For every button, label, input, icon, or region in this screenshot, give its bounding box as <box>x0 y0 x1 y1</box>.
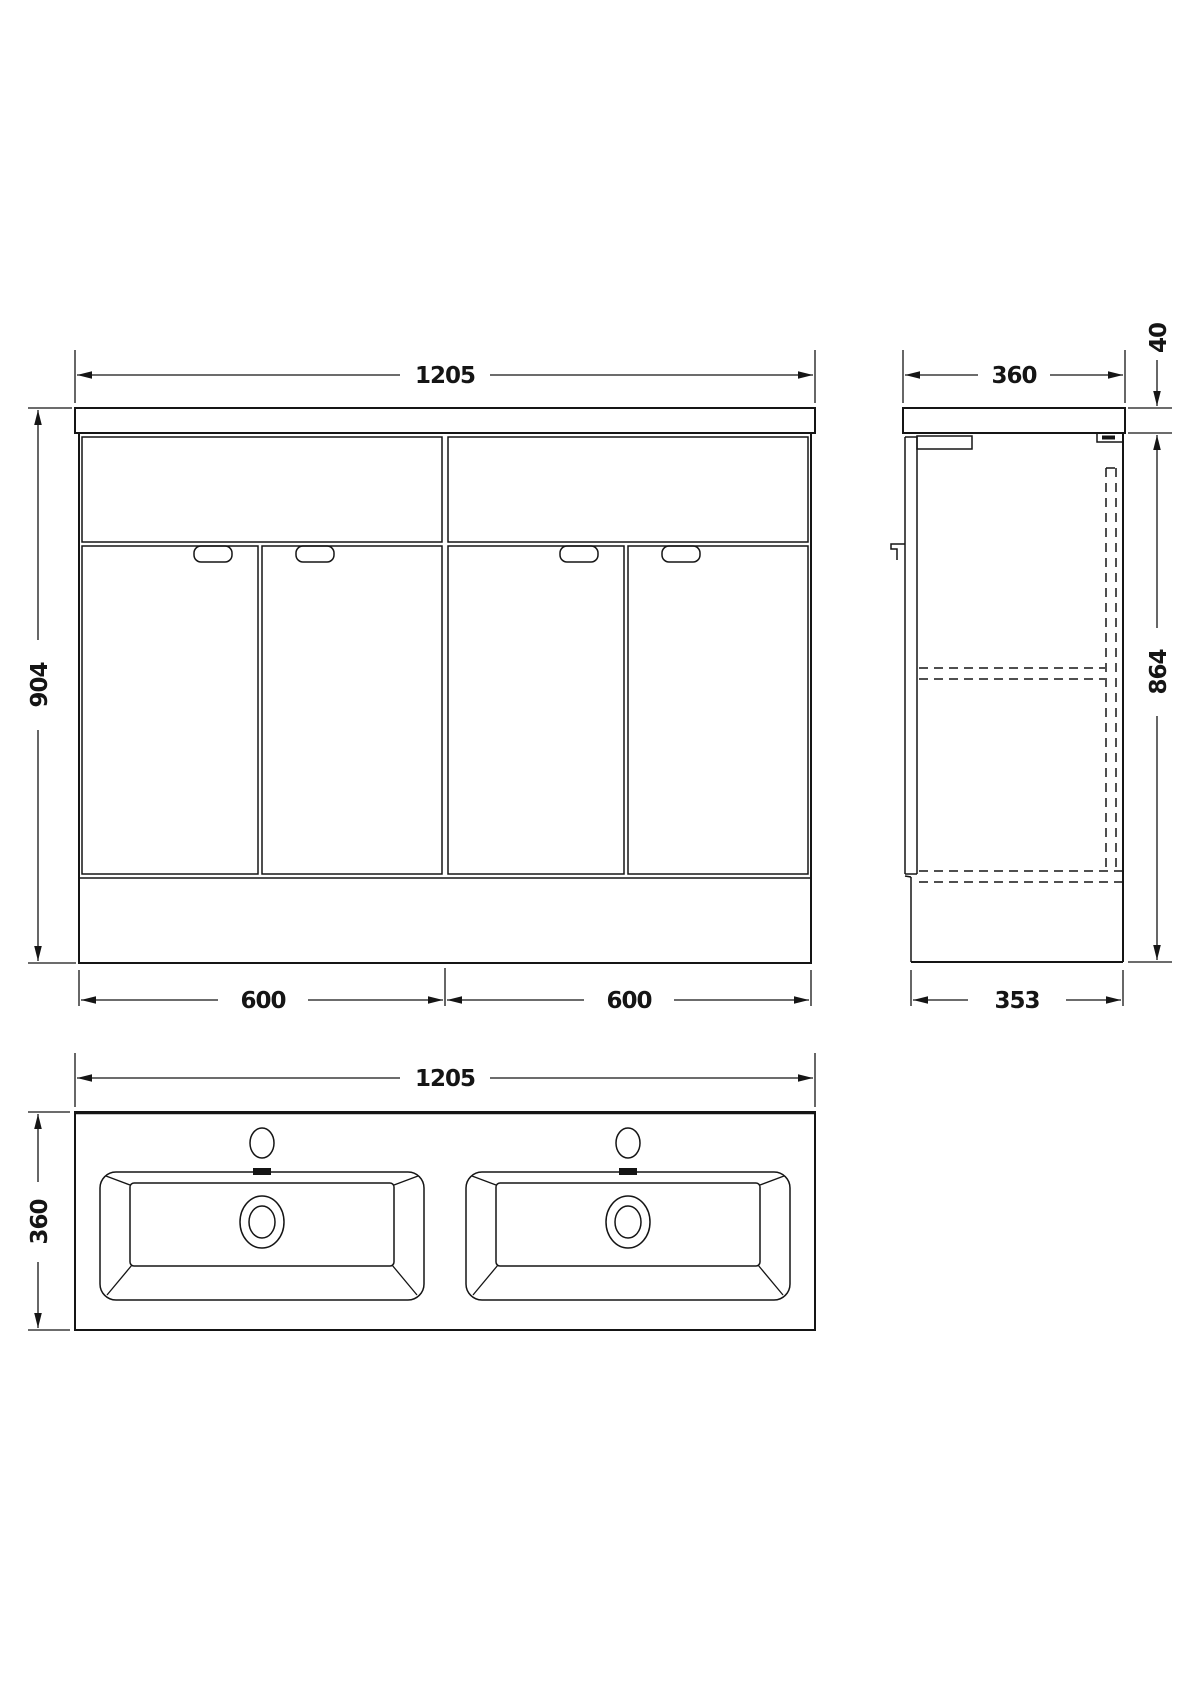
side-drawer-box <box>917 436 972 449</box>
wall-bracket-slot <box>1102 436 1115 440</box>
front-door-4 <box>628 546 808 874</box>
tap-hole-icon <box>616 1128 640 1158</box>
side-countertop <box>903 408 1125 433</box>
technical-drawing-canvas: 1205 904 600 600 <box>0 0 1200 1698</box>
dim-front-height: 904 <box>27 408 76 963</box>
basin-corner-line <box>394 1176 418 1185</box>
door-handle-icon <box>662 546 700 562</box>
door-handle-icon <box>194 546 232 562</box>
dim-label-front-height: 904 <box>27 662 53 707</box>
basin-corner-line <box>106 1176 130 1185</box>
dim-front-units: 600 600 <box>79 968 811 1014</box>
front-drawer-left <box>82 437 442 542</box>
plan-basin-right <box>466 1128 790 1300</box>
basin-corner-line <box>473 1265 498 1295</box>
dim-label-side-depth: 360 <box>991 363 1036 389</box>
waste-inner-icon <box>615 1206 641 1238</box>
front-countertop <box>75 408 815 433</box>
waste-outer-icon <box>240 1196 284 1248</box>
dim-label-worktop: 40 <box>1146 323 1172 353</box>
basin-corner-line <box>392 1265 417 1295</box>
plan-worktop-outline <box>75 1112 815 1330</box>
side-base-panel-hidden <box>919 871 1122 882</box>
dim-side-base: 353 <box>911 970 1123 1014</box>
tap-hole-icon <box>250 1128 274 1158</box>
overflow-slot-icon <box>253 1168 271 1175</box>
door-handle-icon <box>560 546 598 562</box>
dim-label-front-width: 1205 <box>415 363 475 389</box>
door-handle-icon <box>296 546 334 562</box>
waste-outer-icon <box>606 1196 650 1248</box>
dim-label-side-height: 864 <box>1146 649 1172 694</box>
side-view: 360 40 864 353 <box>891 323 1172 1014</box>
front-drawer-right <box>448 437 808 542</box>
basin-outer <box>100 1172 424 1300</box>
front-view: 1205 904 600 600 <box>27 350 815 1014</box>
drawing-sheet: 1205 904 600 600 <box>0 0 1200 1698</box>
dim-plan-depth: 360 <box>27 1112 70 1330</box>
plan-basin-left <box>100 1128 424 1300</box>
dim-label-left-unit: 600 <box>240 988 285 1014</box>
front-door-3 <box>448 546 624 874</box>
front-cabinet-body <box>79 433 811 963</box>
dim-label-plan-depth: 360 <box>27 1199 53 1244</box>
dim-label-base-depth: 353 <box>994 988 1039 1014</box>
side-plinth-step <box>905 876 911 877</box>
dim-label-right-unit: 600 <box>606 988 651 1014</box>
side-shelf-hidden <box>919 668 1105 679</box>
waste-inner-icon <box>249 1206 275 1238</box>
dim-side-height: 864 <box>1128 435 1172 962</box>
overflow-slot-icon <box>619 1168 637 1175</box>
dim-label-plan-width: 1205 <box>415 1066 475 1092</box>
dim-side-depth: 360 <box>903 350 1125 403</box>
basin-corner-line <box>760 1176 784 1185</box>
dim-plan-width: 1205 <box>75 1053 815 1107</box>
front-door-2 <box>262 546 442 874</box>
basin-corner-line <box>758 1265 783 1295</box>
hinge-clip-icon <box>891 544 905 560</box>
basin-corner-line <box>107 1265 132 1295</box>
dim-front-width: 1205 <box>75 350 815 403</box>
plan-view: 1205 <box>27 1053 815 1330</box>
basin-outer <box>466 1172 790 1300</box>
front-door-1 <box>82 546 258 874</box>
basin-corner-line <box>472 1176 496 1185</box>
dim-side-worktop: 40 <box>1128 323 1172 433</box>
side-back-panel-hidden <box>1106 468 1116 870</box>
